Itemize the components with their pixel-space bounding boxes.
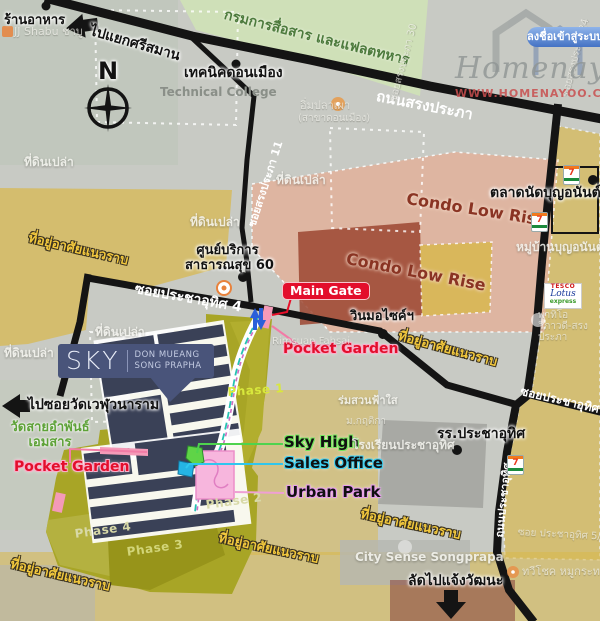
health-center-dot xyxy=(238,272,248,282)
main-gate-label: Main Gate xyxy=(283,283,369,299)
homenayoo-url: WWW.HOMENAYOO.COM xyxy=(455,88,597,100)
taweechok-label: ทวีโชค หมูกระทะ xyxy=(522,566,600,578)
sky-high-label: Sky High xyxy=(284,434,359,451)
technic-label: เทคนิคดอนเมือง xyxy=(184,66,283,82)
urban-park-label: Urban Park xyxy=(286,484,380,501)
market-dot xyxy=(588,175,598,185)
vacant-land-label: ที่ดินเปล่า xyxy=(4,347,54,360)
location-map: ร้านอาหาร ไปแยกศรีสมาน กรมการสื่อสาร และ… xyxy=(0,0,600,621)
fish-restaurant-label: อิ่มปลาเผา xyxy=(300,100,350,112)
restaurant-dot xyxy=(42,2,51,11)
technical-college-label: Technical College xyxy=(160,86,277,99)
fish-restaurant-label2: (สาขาดอนเมือง) xyxy=(298,113,370,124)
motorcycle-taxi-label: วินมอไซค์ฯ xyxy=(350,310,414,325)
seven-eleven-icon: 7 xyxy=(563,165,580,185)
login-button[interactable]: ลงชื่อเข้าสู่ระบบ xyxy=(527,27,600,47)
pocket-garden-label-left: Pocket Garden xyxy=(14,460,130,476)
sky-project-badge: SKY DON MUEANGSONG PRAPHA xyxy=(58,344,214,378)
city-sense-label: City Sense Songprapa xyxy=(355,551,504,564)
sky-project-name: SKY xyxy=(66,347,120,375)
bbq-restaurant-dot xyxy=(511,570,515,574)
temple-label: วัดสายอำพันธ์เอมสาร xyxy=(8,421,92,450)
vacant-land-label: ที่ดินเปล่า xyxy=(190,216,240,229)
rimsuan-fahsai-label: Rimsuan Fahsai xyxy=(272,336,350,347)
health-poi-dot xyxy=(222,286,227,291)
badge-divider xyxy=(127,350,128,372)
school-label: รร.ประชาอุทิศ xyxy=(437,427,525,443)
to-wat-label: ไปซอยวัดเวฬุวนาราม xyxy=(28,398,159,414)
compass-north-label: N xyxy=(98,58,118,85)
shortcut-chaengwattana-label: ลัดไปแจ้งวัฒนะ xyxy=(408,574,503,590)
shabu-label: JJ Shabu ชาบู xyxy=(14,26,83,38)
motorcycle-taxi-dot xyxy=(378,329,388,339)
seven-eleven-icon: 7 xyxy=(507,455,524,475)
health-center-label: ศูนย์บริการสาธารณสุข 60 xyxy=(185,244,270,273)
boon-anan-village-label: หมู่บ้านบุญอนันต์ xyxy=(516,241,600,254)
tesco-lotus-icon: TESCO Lotus express xyxy=(544,283,582,309)
vacant-land-label: ที่ดินเปล่า xyxy=(95,326,145,339)
krittika-label: ม.กฤติกา xyxy=(346,416,386,427)
sales-office-label: Sales Office xyxy=(284,455,383,472)
patio-label: พาทิโอ วิภาวดี-สรงประภา xyxy=(538,310,598,344)
romsuan-fahsai-label: ร่มสวนฟ้าใส xyxy=(338,395,398,407)
vacant-land-label: ที่ดินเปล่า xyxy=(24,156,74,169)
seven-eleven-icon: 7 xyxy=(531,212,548,232)
vacant-land-label: ที่ดินเปล่า xyxy=(276,174,326,187)
homenayoo-brand: Homenayoo xyxy=(455,52,597,86)
market-label: ตลาดนัดบุญอนันต์ xyxy=(490,186,600,202)
sky-project-subtitle: DON MUEANGSONG PRAPHA xyxy=(135,350,202,371)
